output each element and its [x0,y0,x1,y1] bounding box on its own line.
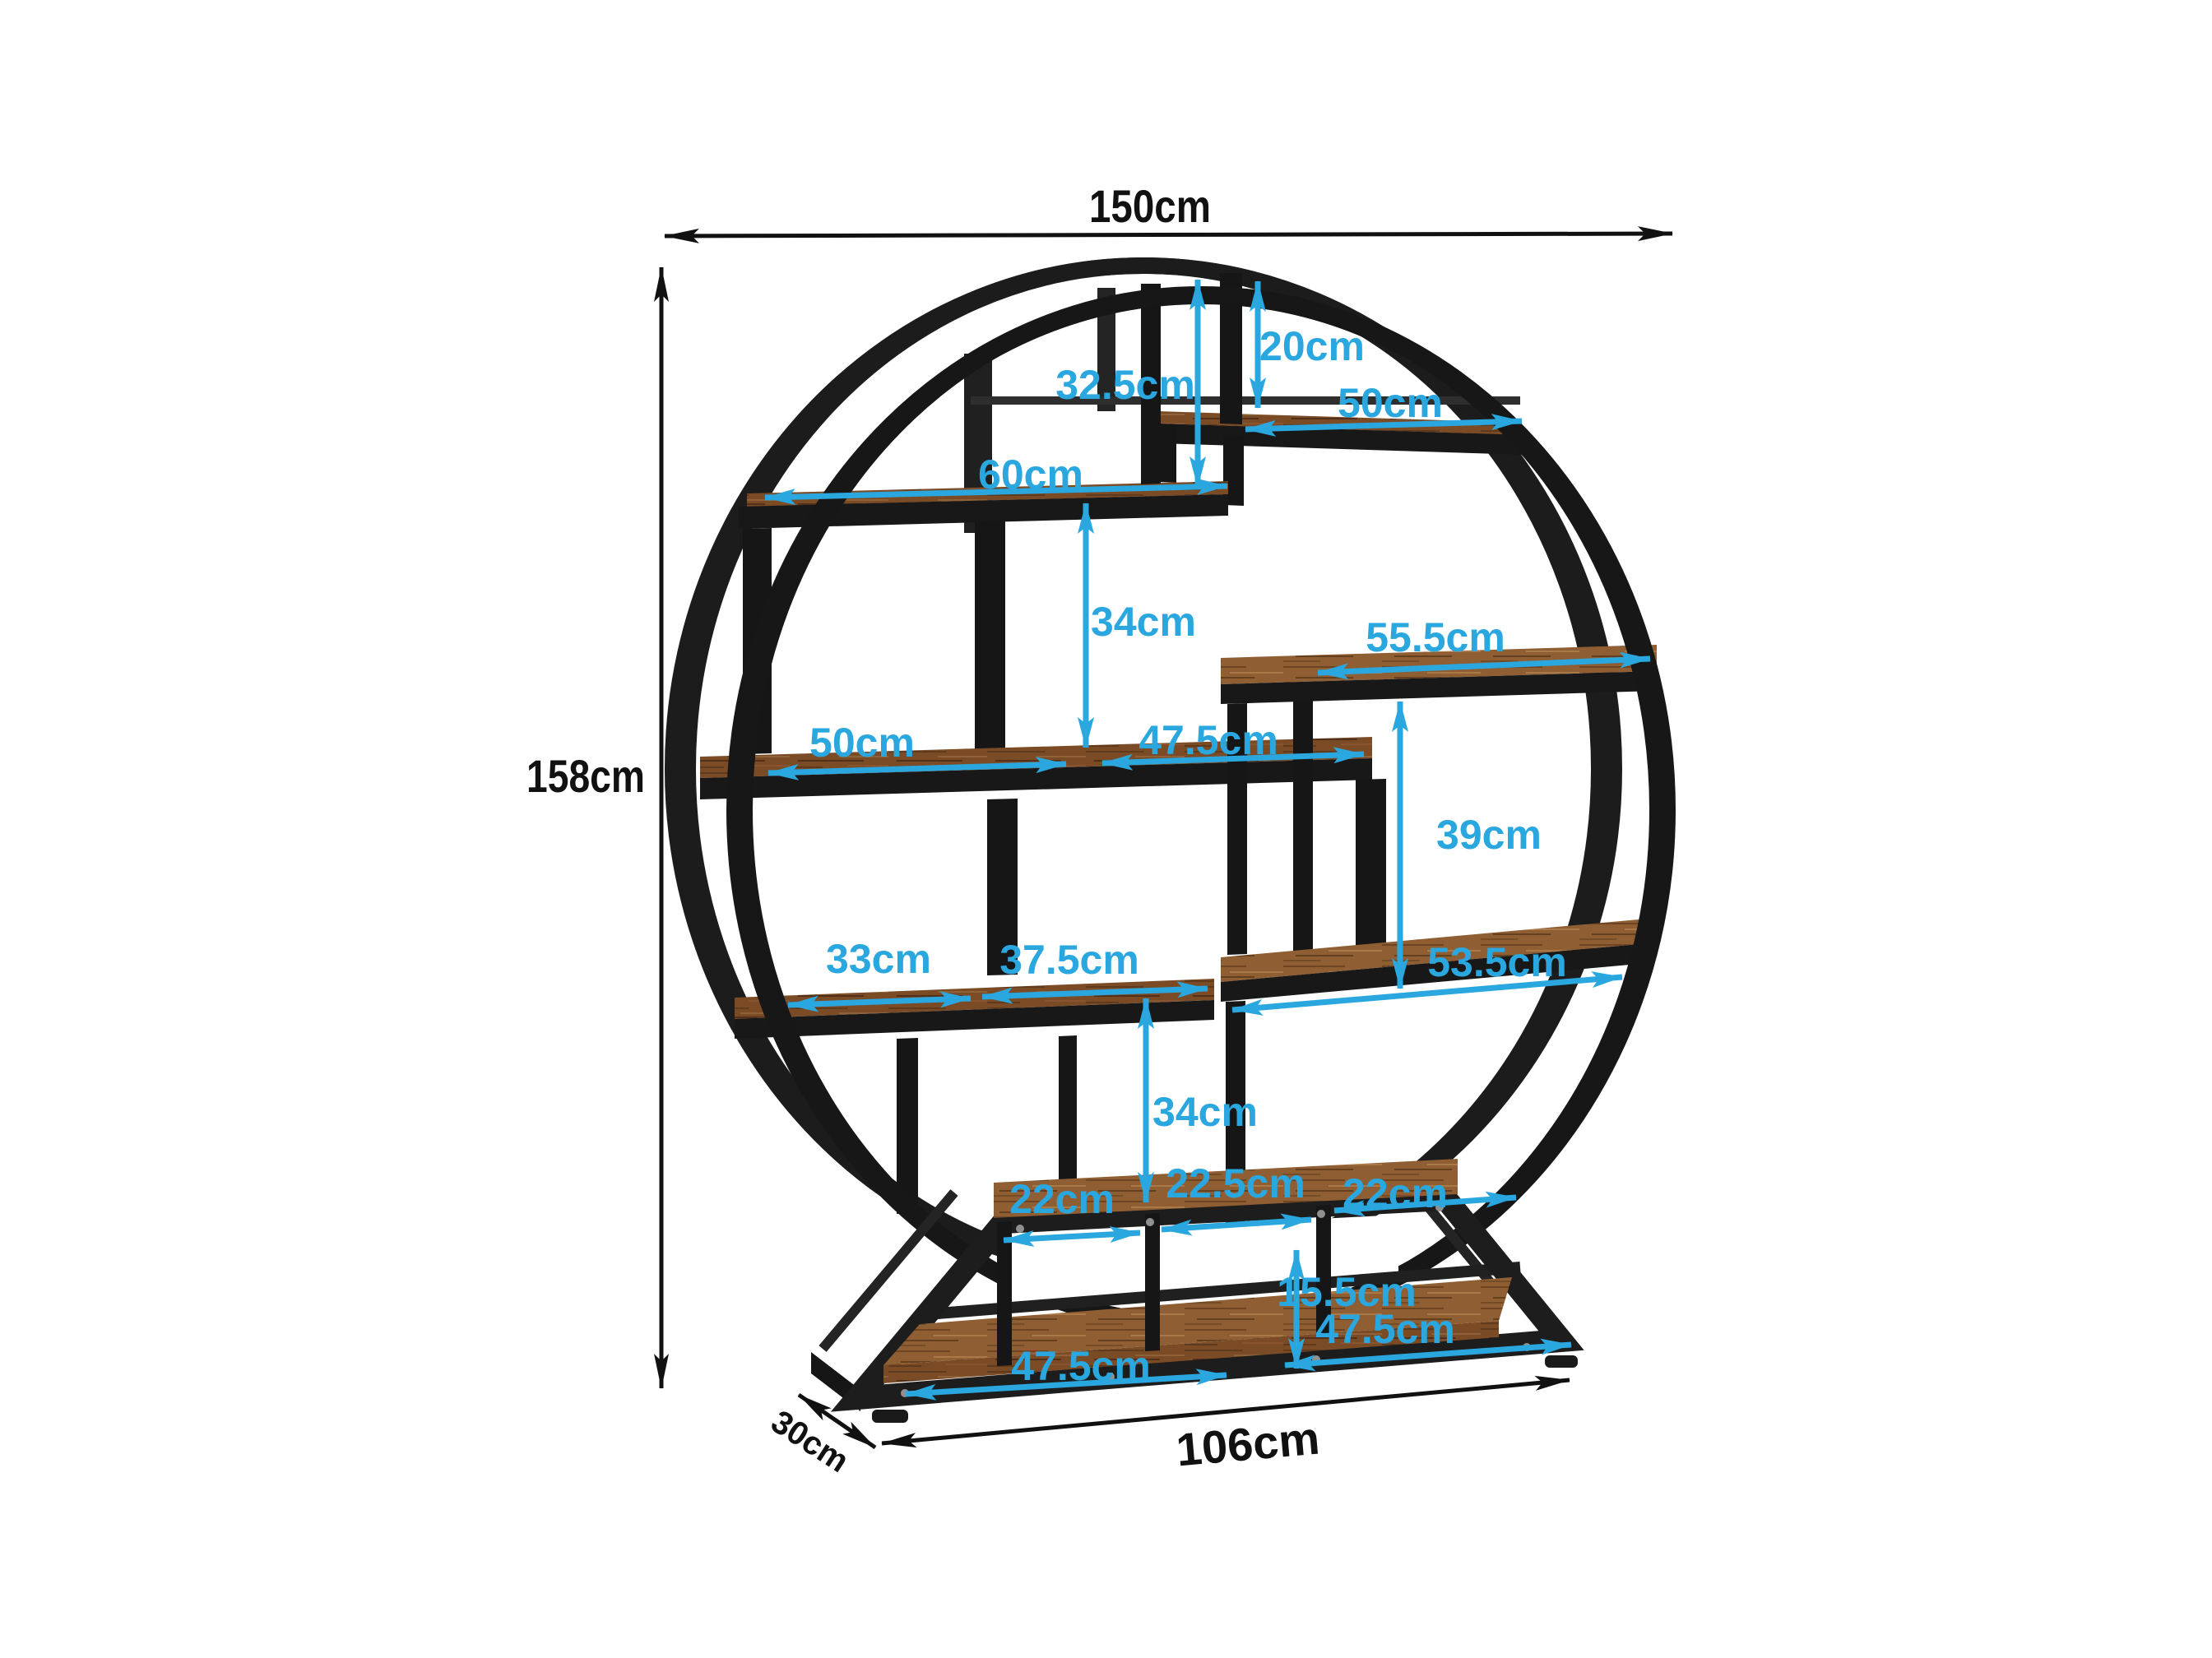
svg-text:50cm: 50cm [809,720,915,766]
svg-text:55.5cm: 55.5cm [1366,614,1505,660]
svg-text:22cm: 22cm [1009,1176,1115,1222]
svg-text:22.5cm: 22.5cm [1166,1160,1305,1206]
svg-text:50cm: 50cm [1338,380,1443,426]
svg-text:20cm: 20cm [1259,323,1365,369]
svg-text:158cm: 158cm [526,750,645,802]
svg-text:37.5cm: 37.5cm [999,937,1139,983]
svg-text:34cm: 34cm [1152,1089,1258,1135]
svg-text:34cm: 34cm [1091,599,1196,645]
svg-text:47.5cm: 47.5cm [1315,1306,1455,1352]
svg-text:53.5cm: 53.5cm [1427,939,1567,985]
svg-text:150cm: 150cm [1089,180,1211,232]
svg-text:33cm: 33cm [826,936,931,982]
svg-text:39cm: 39cm [1436,812,1542,858]
svg-text:32.5cm: 32.5cm [1055,362,1195,408]
